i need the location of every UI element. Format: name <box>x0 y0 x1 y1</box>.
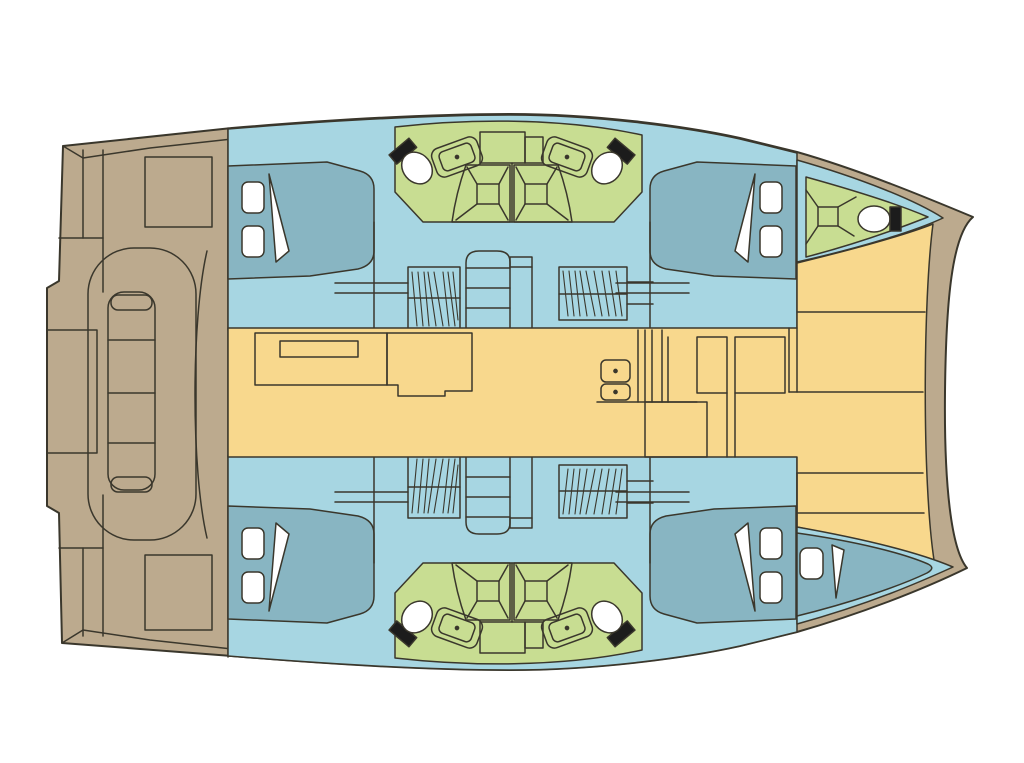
pillow <box>800 548 823 579</box>
drain-dot <box>614 369 617 372</box>
catamaran-floorplan <box>0 0 1024 763</box>
toilet-tank <box>890 207 901 231</box>
toilet <box>858 206 901 232</box>
toilet-bowl <box>858 206 890 232</box>
starboard-hull <box>228 455 797 670</box>
drain-dot <box>614 390 617 393</box>
port-hull <box>228 115 797 330</box>
floorplan-canvas <box>0 0 1024 763</box>
